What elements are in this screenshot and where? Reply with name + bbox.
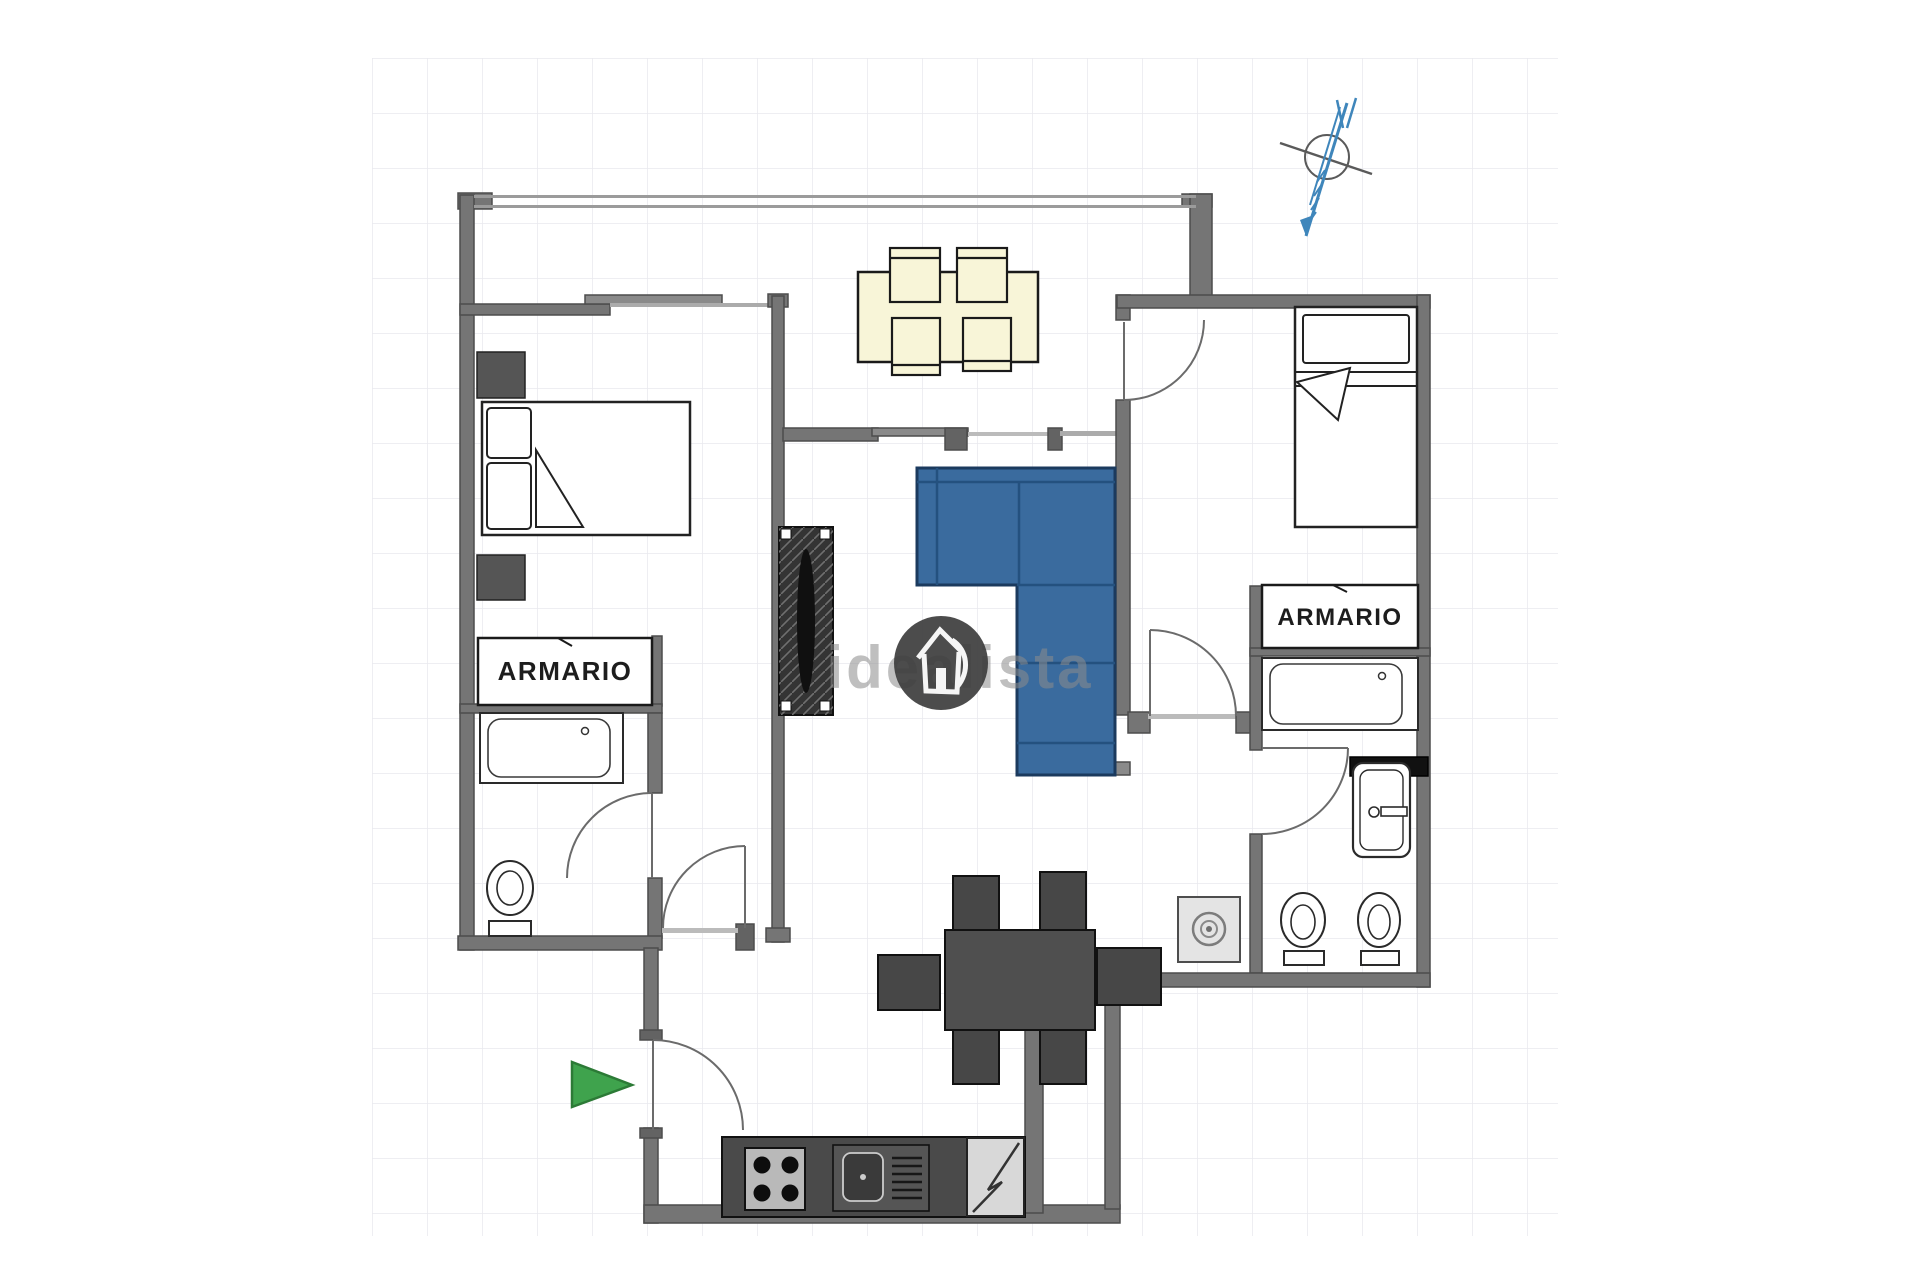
window-line-inner xyxy=(474,205,1196,208)
kitchen-sink-drain xyxy=(860,1174,866,1180)
radiator-foot-4 xyxy=(820,701,830,711)
chair-dark-right xyxy=(1097,948,1161,1005)
nightstand-bottom xyxy=(477,555,525,600)
radiator-core xyxy=(797,549,815,693)
closet-left-label: ARMARIO xyxy=(498,656,633,686)
burner-1 xyxy=(754,1157,771,1174)
wall-hall-cap-bottom xyxy=(766,928,790,942)
window-line-outer xyxy=(474,195,1196,198)
chair-cream-4 xyxy=(963,318,1011,371)
closet-right-label: ARMARIO xyxy=(1277,604,1402,631)
wall-bed2-west xyxy=(1116,400,1130,715)
wall-entry-cap2 xyxy=(640,1128,662,1138)
sill-dining xyxy=(1060,431,1116,436)
wall-bed1-north xyxy=(460,304,610,315)
chair-dark-top2 xyxy=(1040,872,1086,932)
wall-bath1-east-upper xyxy=(648,713,662,793)
chair-dark-bottom2 xyxy=(1040,1026,1086,1084)
wall-nook-cap-left xyxy=(1128,712,1150,733)
wall-dining-post-right xyxy=(1048,428,1062,450)
chair-cream-2 xyxy=(957,248,1007,302)
floorplan-canvas: ARMARIO xyxy=(0,0,1920,1280)
toilet-right-tank xyxy=(1284,951,1324,965)
kitchen-stove xyxy=(745,1148,805,1210)
burner-3 xyxy=(754,1185,771,1202)
wall-dining-post-left xyxy=(945,428,967,450)
chair-cream-1 xyxy=(890,248,940,302)
wall-bath1-south xyxy=(458,936,662,950)
toilet-left-bowl xyxy=(487,861,533,915)
burner-2 xyxy=(782,1157,799,1174)
radiator-foot-2 xyxy=(820,529,830,539)
washing-machine-dot xyxy=(1206,926,1212,932)
radiator-shelf xyxy=(779,527,833,715)
threshold-nook xyxy=(1148,714,1250,719)
toilet-left-tank xyxy=(489,921,531,936)
radiator-foot-3 xyxy=(781,701,791,711)
chair-cream-3 xyxy=(892,318,940,375)
bathtub-left-inner xyxy=(488,719,610,777)
wall-lightwell xyxy=(1105,987,1120,1209)
wall-bath1-east-lower xyxy=(648,878,662,938)
pillow-2 xyxy=(487,463,531,529)
wall-entry-cap1 xyxy=(640,1030,662,1040)
kitchen xyxy=(722,1137,1025,1217)
chair-dark-top1 xyxy=(953,876,999,934)
chair-dark-left xyxy=(878,955,940,1010)
wall-entry-upper xyxy=(644,948,658,1035)
chair-dark-bottom1 xyxy=(953,1026,999,1084)
nightstand-top xyxy=(477,352,525,398)
dining-table-dark xyxy=(945,930,1095,1030)
floor-plan-svg: ARMARIO xyxy=(0,0,1920,1280)
wall-ne-stub xyxy=(1190,194,1212,307)
washbasin-drain xyxy=(1369,807,1379,817)
burner-4 xyxy=(782,1185,799,1202)
threshold-salon xyxy=(662,928,738,933)
bidet-tank xyxy=(1361,951,1399,965)
pillow-1 xyxy=(487,408,531,458)
threshold-dining xyxy=(968,432,1048,436)
wall-bath2-west-upper xyxy=(1250,586,1262,750)
wall-dining-south xyxy=(783,428,878,441)
radiator-foot-1 xyxy=(781,529,791,539)
washbasin-faucet xyxy=(1381,807,1407,816)
single-bed-pillow xyxy=(1303,315,1409,363)
sill-bed1 xyxy=(610,303,772,307)
wall-closet1-stub xyxy=(652,636,662,706)
wall-bath2-west-lower xyxy=(1250,834,1262,973)
sliding-panel-bed1 xyxy=(585,295,722,304)
